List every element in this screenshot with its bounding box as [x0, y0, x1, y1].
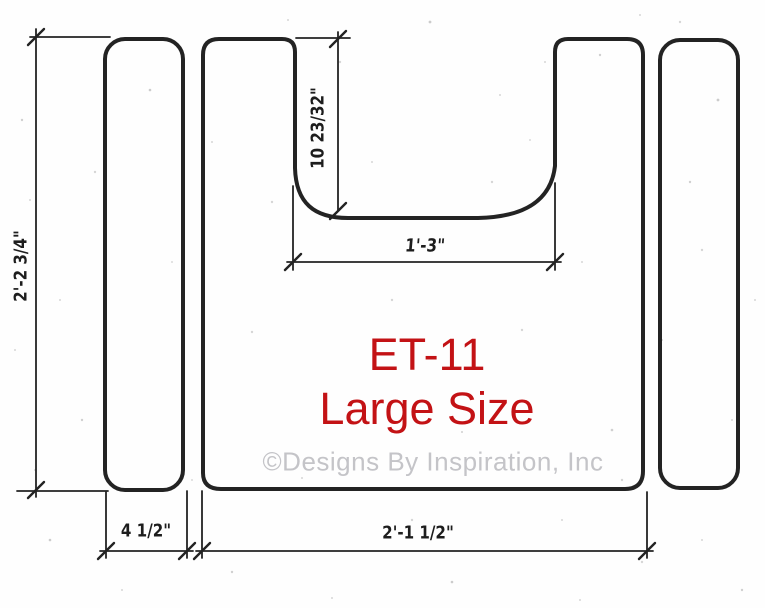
left-strip-shape [105, 39, 183, 490]
product-code: ET-11 [319, 328, 534, 382]
product-size-label: Large Size [319, 382, 534, 436]
dim-overall-width-label: 2'-1 1/2" [382, 523, 454, 544]
copyright-watermark: ©Designs By Inspiration, Inc [263, 447, 604, 478]
dim-overall-height-label: 2'-2 3/4" [11, 230, 32, 302]
dimension-tick-marks [28, 29, 655, 559]
right-strip-shape [660, 40, 738, 488]
template-line-art [0, 0, 765, 608]
product-title: ET-11 Large Size [319, 328, 534, 436]
template-drawing-canvas: 2'-2 3/4" 10 23/32" 1'-3" 4 1/2" 2'-1 1/… [0, 0, 765, 608]
dim-notch-depth-label: 10 23/32" [308, 87, 329, 169]
dim-notch-width-lines [287, 183, 561, 270]
dim-notch-width-label: 1'-3" [404, 236, 446, 257]
dim-strip-width-label: 4 1/2" [121, 521, 171, 542]
